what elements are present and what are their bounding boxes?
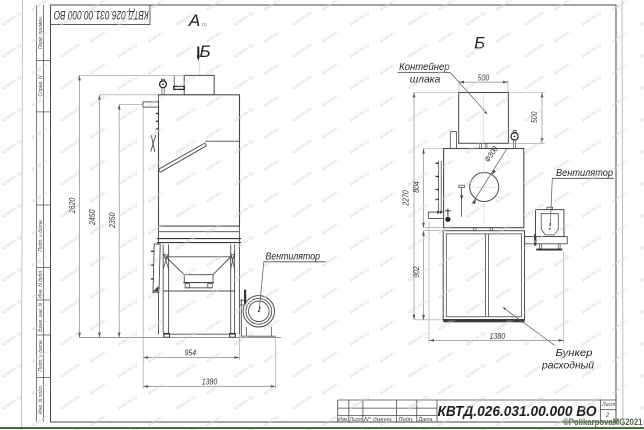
svg-text:©PolikarpovaMG2021: ©PolikarpovaMG2021 xyxy=(563,417,643,427)
